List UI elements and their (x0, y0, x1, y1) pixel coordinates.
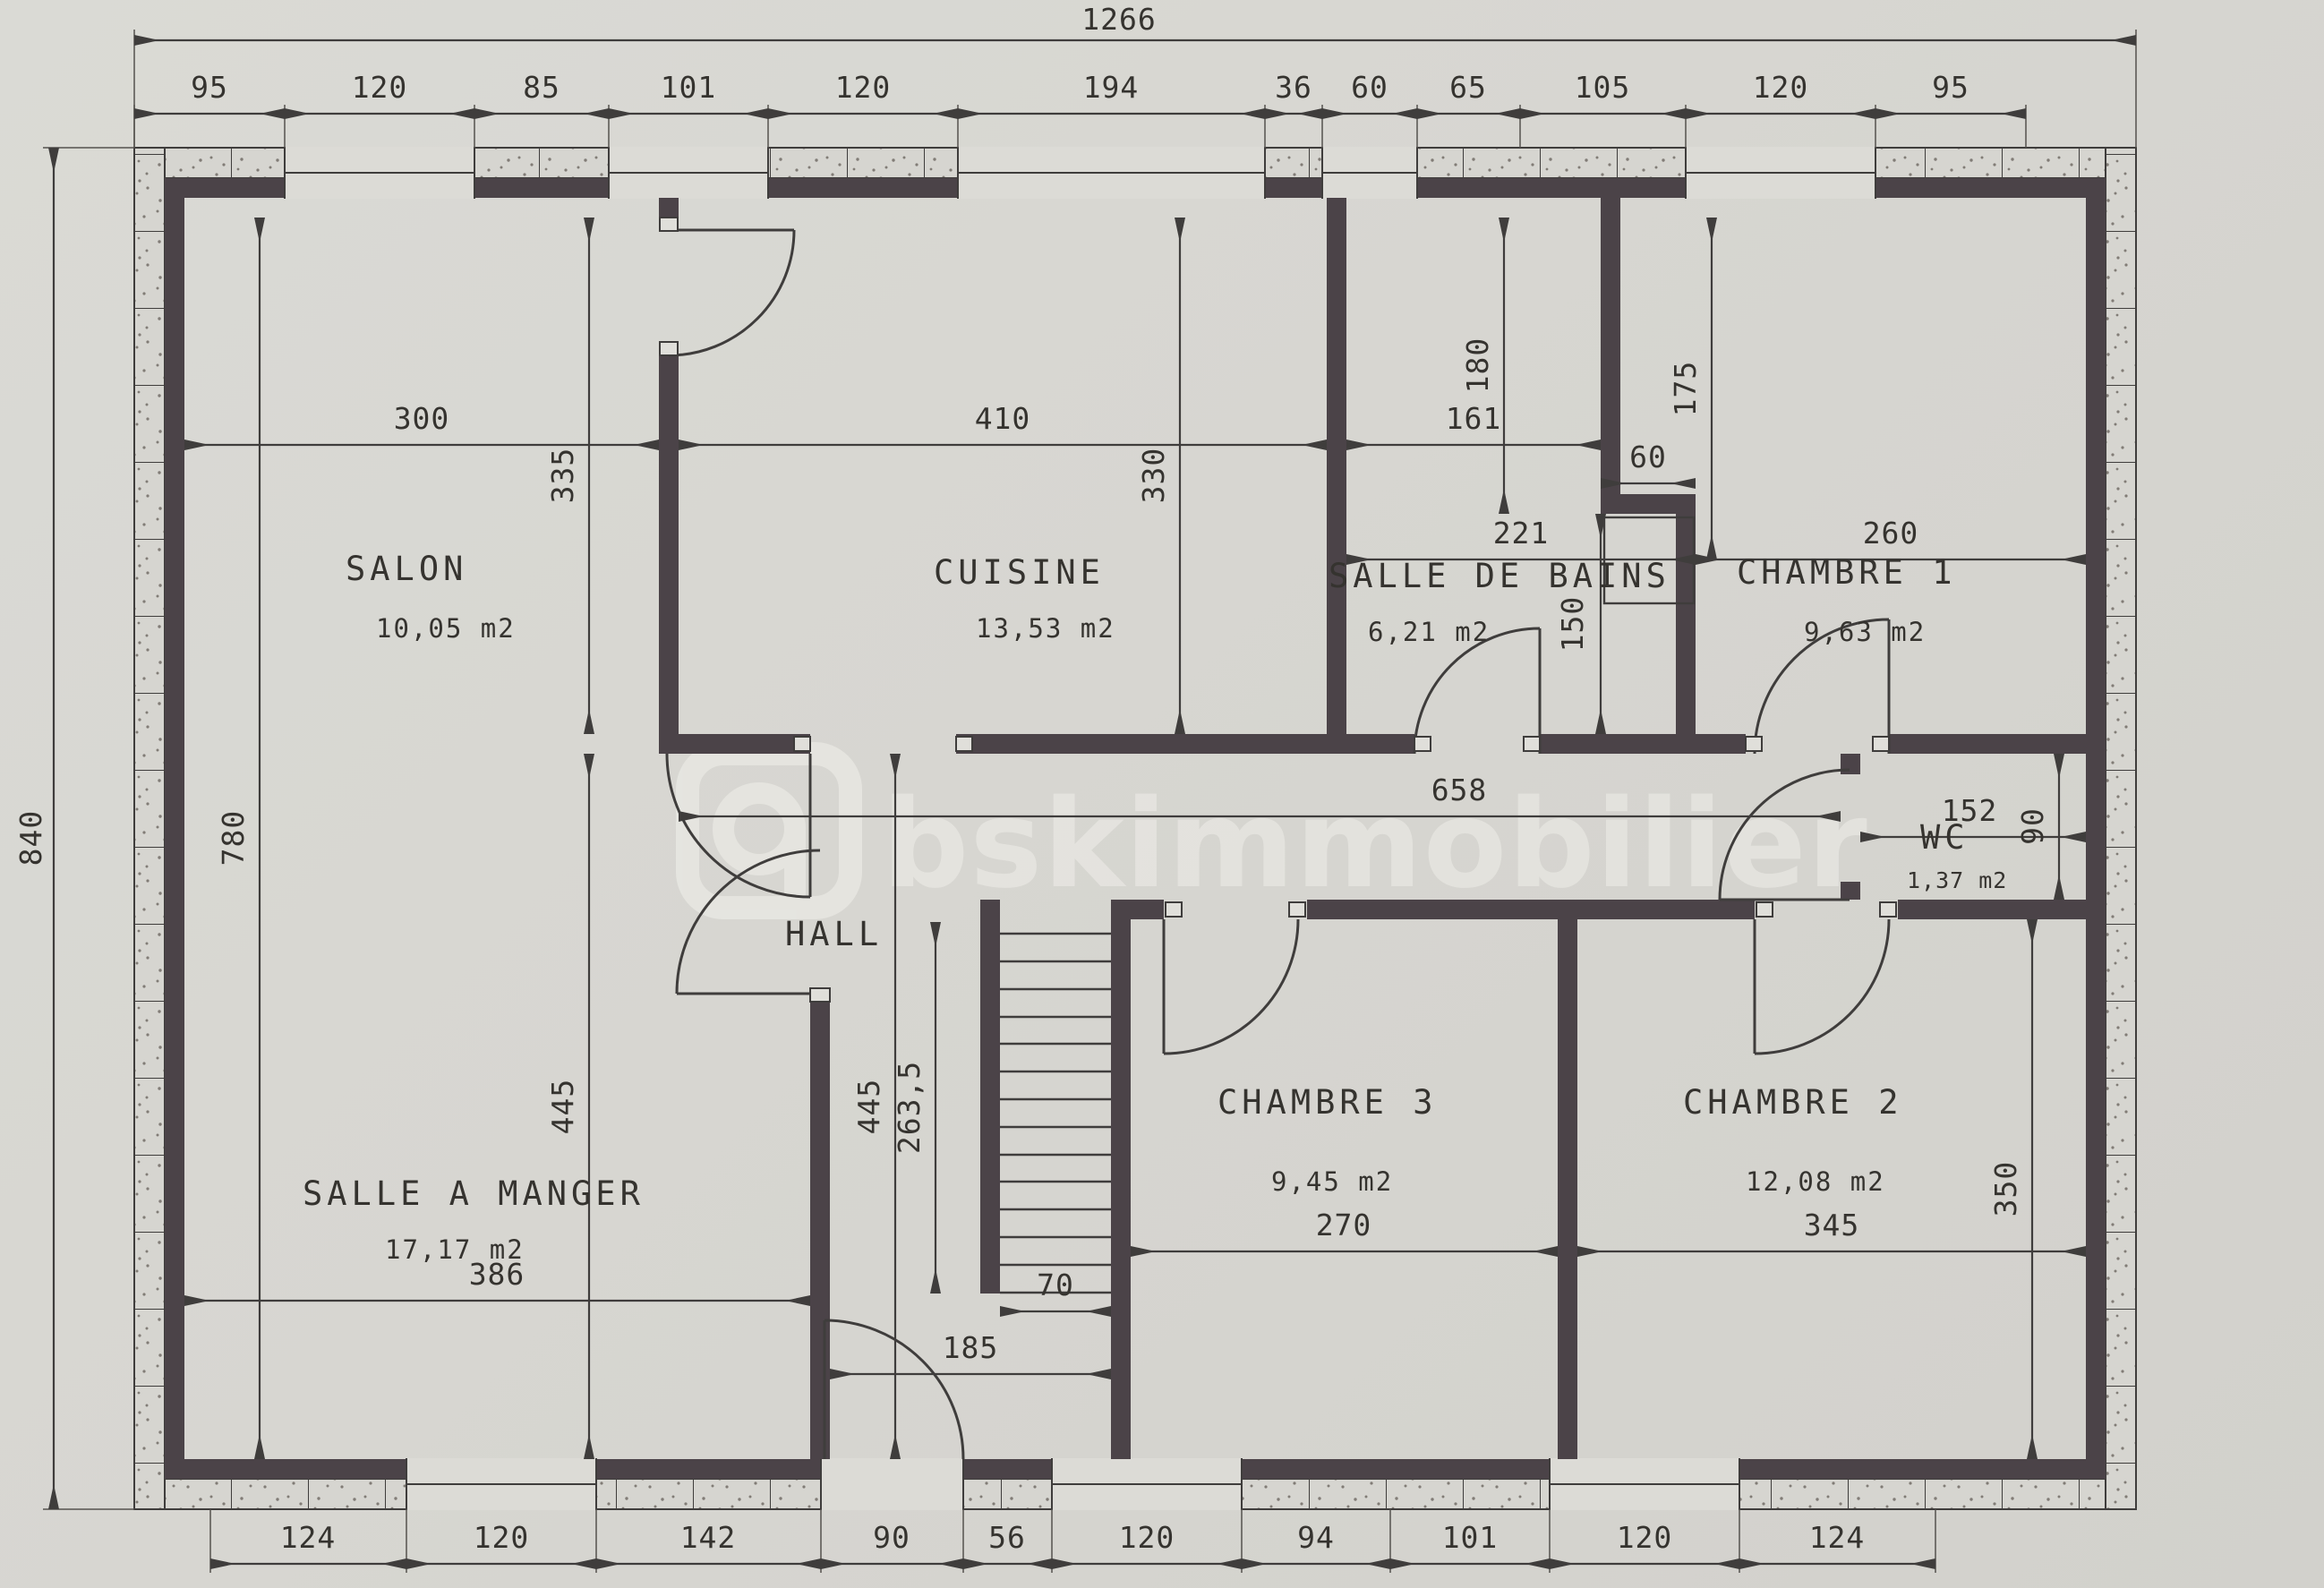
dim-bottom: 120 (474, 1520, 530, 1555)
room-area-cuisine: 13,53 m2 (976, 613, 1115, 644)
wall-corridor-bottom-2 (1307, 900, 1755, 919)
wall-bains-chambre1-upper (1601, 198, 1620, 514)
dim-top: 120 (1753, 70, 1809, 105)
door-jamb (1756, 902, 1773, 917)
wall-salon-cuisine (659, 355, 679, 754)
wall-left-inner (165, 178, 184, 1479)
dim-chambre1-width: 260 (1863, 516, 1919, 551)
dim-bottom: 120 (1119, 1520, 1175, 1555)
dim-hall-height-right: 445 (851, 1079, 886, 1135)
window-top-3 (958, 147, 1265, 199)
floor-plan-drawing: bskimmobilier (0, 0, 2324, 1588)
window-top-2 (609, 147, 768, 199)
dim-bains-width: 161 (1446, 401, 1502, 436)
dim-salon-width: 300 (394, 401, 450, 436)
door-jamb (1414, 737, 1431, 751)
room-area-salle-de-bains: 6,21 m2 (1368, 617, 1490, 647)
room-area-chambre2: 12,08 m2 (1746, 1166, 1885, 1197)
room-area-wc: 1,37 m2 (1907, 867, 2007, 893)
bottom-dimension-row: 124 120 142 90 56 120 94 101 120 124 (210, 1509, 1935, 1573)
window-top-4 (1322, 147, 1417, 199)
wall-corridor-top-3 (1540, 734, 1746, 754)
dim-top: 36 (1275, 70, 1312, 105)
dim-top: 120 (352, 70, 408, 105)
wall-corridor-top-4 (1889, 734, 2086, 754)
dim-wc-height: 90 (2015, 807, 2050, 845)
dim-chambre3-width: 270 (1316, 1208, 1372, 1242)
dim-top: 65 (1449, 70, 1487, 105)
room-area-chambre3: 9,45 m2 (1271, 1166, 1393, 1197)
room-area-salle-a-manger: 17,17 m2 (385, 1234, 525, 1265)
dim-left-height: 780 (216, 810, 251, 867)
room-area-salon: 10,05 m2 (376, 613, 516, 644)
door-salle-de-bains (1414, 628, 1540, 754)
dim-cuisine-width: 410 (975, 401, 1031, 436)
dim-stair-length: 263,5 (892, 1061, 927, 1154)
dim-bottom: 124 (280, 1520, 337, 1555)
dim-bains-span: 221 (1493, 516, 1550, 551)
dim-bottom: 142 (680, 1520, 737, 1555)
dim-top: 105 (1575, 70, 1631, 105)
door-jamb (1746, 737, 1762, 751)
window-top-5 (1686, 147, 1875, 199)
room-area-chambre1: 9,63 m2 (1804, 617, 1926, 647)
floor-plan-document: bskimmobilier (0, 0, 2324, 1588)
door-chambre3 (1164, 919, 1298, 1054)
wall-corridor-top-2 (956, 734, 1414, 754)
wall-stair-left-rail (980, 900, 1000, 1293)
dim-cuisine-height: 330 (1136, 448, 1171, 504)
door-jamb (1880, 902, 1896, 917)
dim-bottom: 90 (873, 1520, 910, 1555)
room-label-chambre2: CHAMBRE 2 (1683, 1083, 1902, 1122)
dim-chambre1-height: 175 (1668, 361, 1703, 417)
dim-top: 60 (1351, 70, 1388, 105)
door-jamb (660, 218, 678, 231)
door-jamb (660, 342, 678, 355)
window-bottom-1 (406, 1458, 596, 1510)
dim-bottom: 101 (1442, 1520, 1499, 1555)
door-jamb (794, 737, 810, 751)
dim-salon-height: 335 (545, 448, 580, 504)
dim-bottom: 56 (988, 1520, 1026, 1555)
dim-overall-height: 840 (13, 810, 48, 867)
dim-top: 101 (661, 70, 717, 105)
door-jamb (1289, 902, 1305, 917)
window-bottom-3 (1550, 1458, 1739, 1510)
dim-hall-width: 185 (943, 1330, 999, 1365)
dim-bottom: 124 (1809, 1520, 1866, 1555)
wall-cuisine-bains (1327, 198, 1346, 754)
room-label-salle-a-manger: SALLE A MANGER (303, 1174, 645, 1213)
wall-wc-left-bottom (1841, 882, 1860, 900)
dim-stair-width: 70 (1037, 1268, 1074, 1302)
wall-corridor-top-1 (679, 734, 810, 754)
dim-top: 85 (523, 70, 560, 105)
door-jamb (956, 737, 972, 751)
top-dimension-row: 95 120 85 101 120 194 36 60 65 105 120 9… (134, 70, 2026, 148)
overall-dimensions: 1266 840 (13, 2, 2136, 1509)
dim-bains-height-bottom: 150 (1555, 596, 1590, 653)
window-top-1 (285, 147, 474, 199)
wall-bains-chambre1-lower (1676, 494, 1696, 754)
window-bottom-2 (1052, 1458, 1242, 1510)
dim-bains-niche: 60 (1629, 440, 1667, 474)
front-door-opening (821, 1458, 963, 1510)
watermark-logo-icon (688, 754, 850, 908)
room-label-chambre1: CHAMBRE 1 (1737, 553, 1956, 592)
dim-chambre2-height: 350 (1988, 1161, 2023, 1217)
room-label-cuisine: CUISINE (934, 553, 1105, 592)
door-jamb (1166, 902, 1182, 917)
wall-right-hatch (2106, 148, 2136, 1509)
door-chambre2 (1755, 919, 1889, 1054)
wall-chambre3-chambre2 (1558, 919, 1577, 1459)
door-jamb (810, 988, 830, 1002)
watermark: bskimmobilier (688, 754, 1868, 916)
door-jamb (1873, 737, 1889, 751)
room-label-hall: HALL (785, 915, 883, 953)
dim-top: 194 (1083, 70, 1140, 105)
room-label-chambre3: CHAMBRE 3 (1218, 1083, 1437, 1122)
room-label-salle-de-bains: SALLE DE BAINS (1329, 557, 1670, 595)
wall-sallemanger-hall (810, 994, 830, 1459)
door-jamb (1524, 737, 1540, 751)
dim-chambre2-width: 345 (1804, 1208, 1860, 1242)
dim-bottom: 120 (1617, 1520, 1673, 1555)
door-cuisine (669, 230, 794, 355)
room-label-salon: SALON (346, 550, 467, 588)
dim-corridor-length: 658 (1431, 773, 1488, 807)
dim-top: 120 (835, 70, 892, 105)
wall-right-inner (2086, 178, 2106, 1479)
dim-top: 95 (1932, 70, 1969, 105)
stairs (1000, 934, 1111, 1293)
dim-overall-width: 1266 (1081, 2, 1156, 37)
dim-bains-height-top: 180 (1460, 337, 1495, 394)
dim-top: 95 (191, 70, 228, 105)
wall-corridor-bottom-3 (1898, 900, 2086, 919)
wall-left-hatch (134, 148, 165, 1509)
wall-chambre3-west (1111, 900, 1131, 1459)
dim-hall-height-left: 445 (545, 1079, 580, 1135)
dim-bottom: 94 (1297, 1520, 1335, 1555)
room-label-wc: WC (1920, 818, 1969, 857)
